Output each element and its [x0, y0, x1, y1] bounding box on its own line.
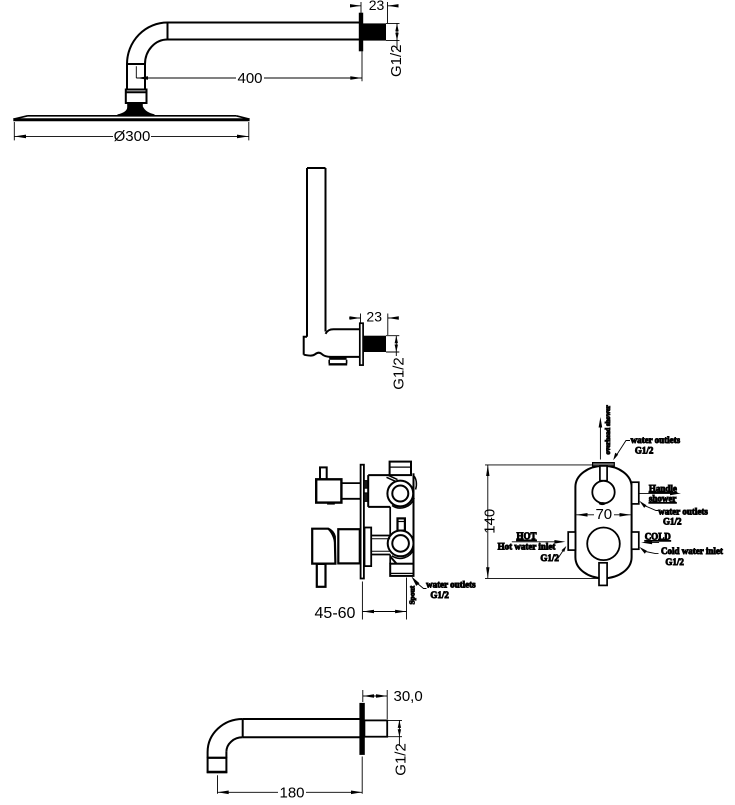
svg-text:70: 70: [595, 506, 612, 523]
svg-text:G1/2: G1/2: [540, 553, 559, 563]
svg-text:water outlets: water outlets: [658, 506, 708, 516]
svg-text:G1/2: G1/2: [430, 590, 449, 600]
svg-text:Spout: Spout: [408, 585, 417, 604]
svg-text:G1/2: G1/2: [393, 743, 410, 776]
svg-text:180: 180: [279, 785, 304, 801]
svg-text:COLD: COLD: [645, 531, 672, 541]
svg-text:400: 400: [237, 70, 262, 87]
svg-text:G1/2: G1/2: [388, 44, 405, 77]
svg-text:Hot water inlet: Hot water inlet: [498, 542, 556, 552]
svg-text:23: 23: [369, 0, 385, 13]
svg-text:HOT: HOT: [517, 531, 537, 541]
svg-text:Handle: Handle: [649, 483, 677, 493]
svg-text:Ø300: Ø300: [114, 128, 151, 145]
svg-text:water outlets: water outlets: [426, 580, 476, 590]
svg-text:G1/2: G1/2: [665, 557, 684, 567]
svg-text:23: 23: [366, 309, 382, 325]
svg-text:G1/2: G1/2: [635, 445, 654, 455]
svg-text:overhead shower: overhead shower: [605, 405, 612, 454]
svg-text:G1/2: G1/2: [663, 516, 682, 526]
svg-text:G1/2: G1/2: [391, 357, 408, 390]
svg-text:water outlets: water outlets: [631, 435, 681, 445]
svg-text:Cold water inlet: Cold water inlet: [661, 546, 723, 556]
svg-text:30,0: 30,0: [394, 688, 423, 705]
svg-text:45-60: 45-60: [315, 605, 356, 622]
svg-text:shower: shower: [649, 493, 677, 503]
svg-text:140: 140: [482, 509, 499, 534]
